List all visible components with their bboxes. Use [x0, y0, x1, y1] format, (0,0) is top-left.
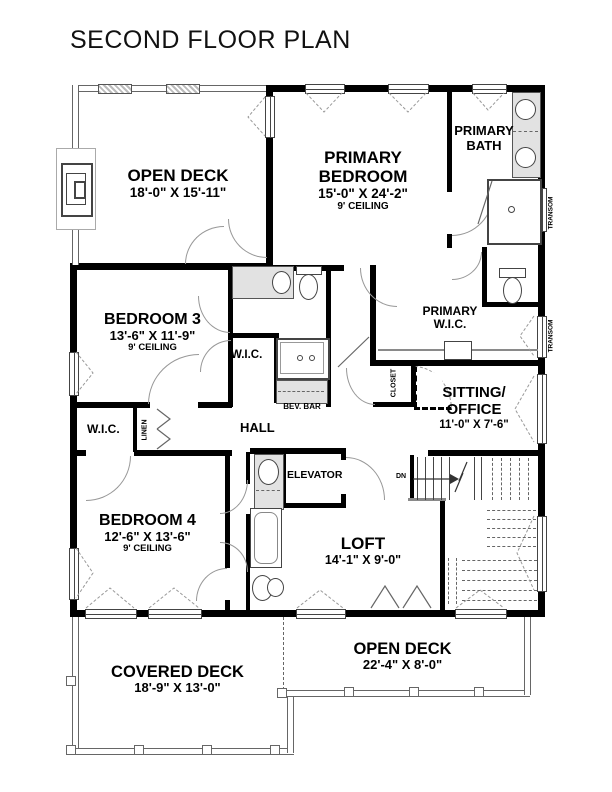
faucet	[309, 355, 315, 361]
wall-segment	[370, 360, 540, 366]
vanity-divider	[256, 490, 280, 491]
room-name: W.I.C.	[408, 318, 492, 331]
room-name: OFFICE	[430, 402, 518, 419]
transom-label: TRANSOM	[548, 320, 555, 353]
wall-segment	[410, 455, 414, 500]
stair-rail-dashed	[528, 458, 529, 500]
down-label: DN	[396, 473, 406, 481]
window	[537, 374, 547, 444]
stair-rail-dashed	[492, 458, 493, 500]
deck-rail	[524, 617, 531, 695]
room-name: PRIMARY	[283, 148, 443, 167]
deck-rail	[283, 690, 530, 697]
window	[69, 352, 79, 396]
wall-segment	[482, 247, 487, 307]
wall-segment	[428, 450, 538, 456]
wall-segment	[134, 450, 232, 456]
toilet-tank	[267, 578, 284, 597]
stair-tread	[449, 457, 450, 500]
stair-tread	[441, 457, 442, 500]
toilet-bowl	[503, 277, 522, 304]
faucet	[297, 355, 303, 361]
deck-post	[409, 687, 419, 697]
window	[472, 84, 507, 94]
window	[85, 609, 137, 619]
open-below-dashed	[462, 590, 537, 591]
stair-tread	[474, 457, 475, 500]
room-open-deck-upper: OPEN DECK 18'-0" X 15'-11"	[88, 166, 268, 200]
closet-shelf	[444, 341, 472, 360]
open-below-dashed	[462, 600, 537, 601]
room-dims: 12'-6" X 13'-6"	[75, 530, 220, 545]
room-primary-bedroom: PRIMARY BEDROOM 15'-0" X 24'-2" 9' CEILI…	[283, 148, 443, 212]
wic-label: W.I.C.	[87, 423, 120, 436]
bathtub-inner	[254, 512, 278, 564]
deck-post	[98, 84, 132, 94]
beverage-bar-counter	[276, 380, 328, 404]
deck-rail	[287, 695, 294, 753]
deck-post	[344, 687, 354, 697]
deck-post	[277, 688, 287, 698]
open-below-dashed	[487, 537, 536, 538]
door-arc	[220, 480, 248, 514]
room-name: BEDROOM 3	[80, 311, 225, 329]
room-open-deck-lower: OPEN DECK 22'-4" X 8'-0"	[320, 640, 485, 673]
shower	[487, 179, 542, 245]
room-dims: 14'-1" X 9'-0"	[305, 553, 421, 567]
wall-segment	[228, 333, 278, 338]
room-name: COVERED DECK	[95, 663, 260, 681]
door-arc	[346, 368, 375, 405]
window	[148, 609, 202, 619]
room-dims: 13'-6" X 11'-9"	[80, 329, 225, 344]
room-name: LOFT	[305, 534, 421, 553]
stair-tread	[417, 457, 418, 500]
chimney-flue	[74, 181, 86, 199]
window	[537, 516, 547, 592]
open-below-dashed	[487, 546, 536, 547]
deck-post	[270, 745, 280, 755]
room-dims: 18'-0" X 15'-11"	[88, 185, 268, 200]
transom-label: TRANSOM	[548, 197, 555, 230]
shower-drain	[508, 206, 515, 213]
room-dims: 15'-0" X 24'-2"	[283, 186, 443, 201]
deck-edge-dashed	[283, 617, 284, 695]
room-name: OPEN DECK	[320, 640, 485, 658]
window	[305, 84, 345, 94]
floor-plan-page: SECOND FLOOR PLAN	[0, 0, 612, 792]
room-name: BEDROOM 4	[75, 512, 220, 530]
room-ceiling: 9' CEILING	[283, 201, 443, 212]
window	[455, 609, 507, 619]
deck-post	[66, 745, 76, 755]
wall-segment	[440, 500, 445, 613]
room-primary-wic: PRIMARY W.I.C.	[408, 305, 492, 332]
sink	[515, 99, 536, 120]
deck-post	[166, 84, 200, 94]
room-covered-deck: COVERED DECK 18'-9" X 13'-0"	[95, 663, 260, 696]
open-below-dashed	[462, 580, 537, 581]
deck-post	[134, 745, 144, 755]
room-dims: 22'-4" X 8'-0"	[320, 658, 485, 673]
room-name: SITTING/	[430, 385, 518, 402]
room-name: BATH	[444, 139, 524, 154]
open-below-dashed	[462, 570, 537, 571]
bev-bar-label: BEV. BAR	[258, 403, 346, 412]
closet-label: CLOSET	[391, 369, 398, 397]
door-arc-elevator	[346, 457, 385, 500]
open-below-dashed	[487, 528, 536, 529]
room-primary-bath: PRIMARY BATH	[444, 124, 524, 153]
wall-segment	[198, 402, 232, 408]
toilet-bowl	[299, 274, 318, 300]
room-name: BEDROOM	[283, 167, 443, 186]
door-arc	[228, 219, 267, 258]
hall-label: HALL	[240, 421, 275, 436]
room-ceiling: 9' CEILING	[80, 343, 225, 354]
room-bedroom-3: BEDROOM 3 13'-6" X 11'-9" 9' CEILING	[80, 311, 225, 354]
door-arc	[148, 354, 199, 404]
open-below-dashed	[487, 510, 536, 511]
wic-label: W.I.C.	[231, 349, 262, 362]
window-transom	[537, 316, 547, 358]
elevator-label: ELEVATOR	[287, 470, 342, 482]
room-bedroom-4: BEDROOM 4 12'-6" X 13'-6" 9' CEILING	[75, 512, 220, 555]
open-below-dashed	[448, 558, 449, 604]
window	[296, 609, 346, 619]
sink	[272, 271, 291, 294]
room-loft: LOFT 14'-1" X 9'-0"	[305, 534, 421, 567]
stair-tread	[481, 457, 482, 500]
sink	[258, 459, 279, 485]
deck-post	[66, 676, 76, 686]
wall-segment	[133, 408, 137, 452]
window	[69, 548, 79, 600]
door-arc	[452, 252, 482, 280]
wall-segment	[225, 600, 230, 612]
page-title: SECOND FLOOR PLAN	[70, 26, 351, 55]
wall-segment	[282, 503, 346, 508]
wall-segment	[70, 450, 86, 456]
door-arc	[86, 456, 131, 501]
wall-segment	[447, 234, 452, 248]
stair-rail-dashed	[519, 458, 520, 500]
deck-rail	[72, 748, 294, 755]
room-name: OPEN DECK	[88, 166, 268, 185]
open-below-dashed	[462, 560, 537, 561]
window	[388, 84, 429, 94]
stair-tread	[425, 457, 426, 500]
door-arc	[196, 568, 227, 601]
door-arc	[185, 226, 224, 264]
room-name: PRIMARY	[408, 305, 492, 318]
room-dims: 18'-9" X 13'-0"	[95, 681, 260, 696]
stair-rail-dashed	[501, 458, 502, 500]
room-name: PRIMARY	[444, 124, 524, 139]
counter-divider	[278, 391, 324, 392]
linen-label: LINEN	[142, 420, 149, 441]
stair-tread	[433, 457, 434, 500]
wall-segment	[70, 402, 150, 408]
open-below-dashed	[456, 558, 457, 604]
door-arc	[360, 268, 397, 307]
room-sitting-office: SITTING/ OFFICE 11'-0" X 7'-6"	[430, 385, 518, 431]
deck-post	[474, 687, 484, 697]
room-ceiling: 9' CEILING	[75, 544, 220, 555]
deck-post	[202, 745, 212, 755]
room-dims: 11'-0" X 7'-6"	[430, 419, 518, 432]
open-below-dashed	[487, 519, 536, 520]
stair-rail-dashed	[510, 458, 511, 500]
window	[265, 96, 275, 138]
